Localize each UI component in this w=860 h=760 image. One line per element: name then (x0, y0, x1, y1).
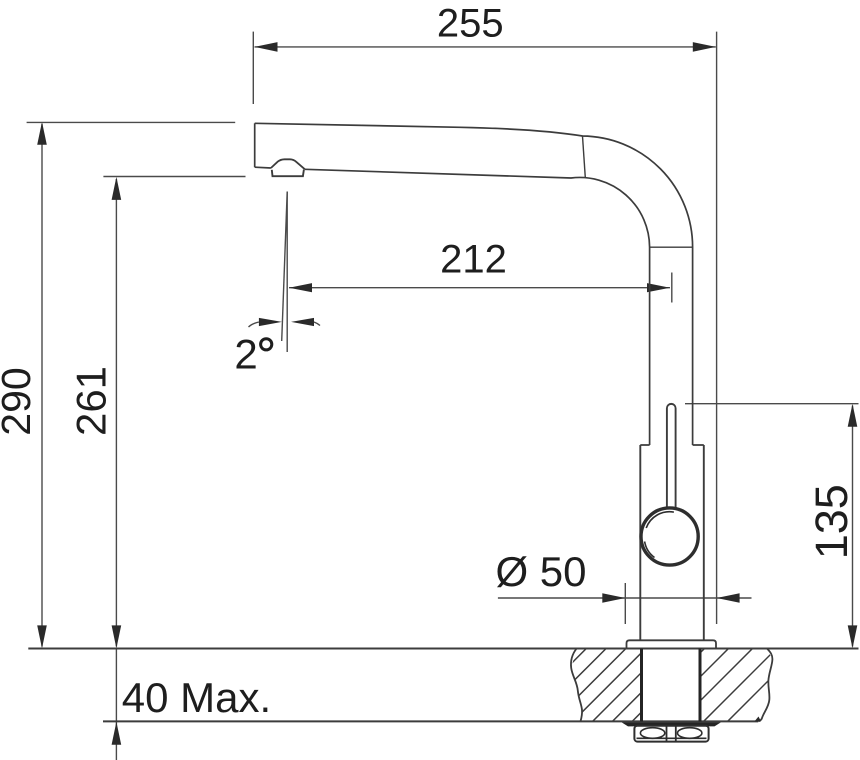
svg-text:2: 2 (234, 331, 257, 378)
svg-text:40 Max.: 40 Max. (122, 674, 271, 721)
svg-text:212: 212 (440, 238, 507, 282)
svg-text:261: 261 (68, 366, 115, 436)
svg-text:255: 255 (437, 1, 504, 45)
svg-text:135: 135 (806, 484, 857, 559)
svg-text:290: 290 (0, 367, 39, 435)
svg-text:Ø 50: Ø 50 (495, 548, 586, 595)
